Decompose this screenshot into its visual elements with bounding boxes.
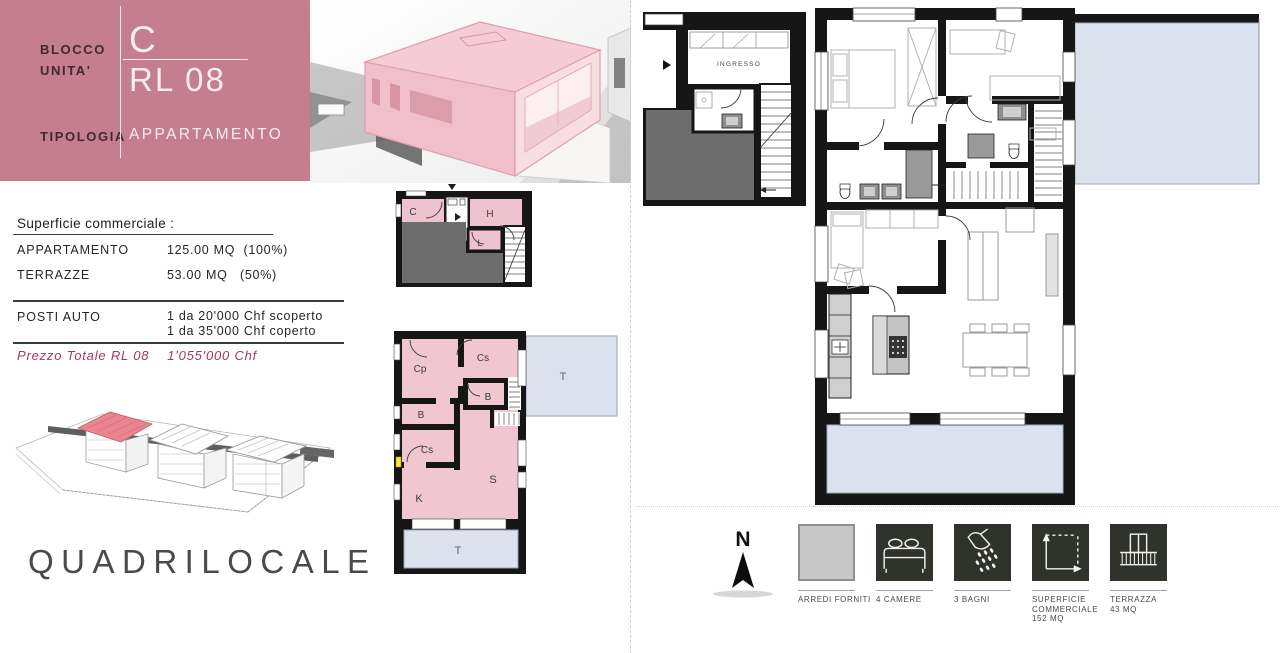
legend-label-line: 152 MQ — [1032, 614, 1089, 624]
room-label-cs-top: Cs — [477, 353, 489, 364]
entry-arrow-icon — [448, 184, 456, 190]
brochure-page: BLOCCO C UNITA' RL 08 TIPOLOGIA APPARTAM… — [0, 0, 1280, 653]
main-floor-plan: INGRESSO — [638, 0, 1280, 520]
legend-label-line: 43 MQ — [1110, 605, 1167, 615]
apartment-key-plan: Cp Cs B B Cs K S T T — [390, 326, 628, 578]
entrance-label: INGRESSO — [717, 61, 761, 68]
legend-label-line: 3 BAGNI — [954, 595, 1011, 605]
surface-row-label: APPARTAMENTO — [17, 243, 129, 257]
legend-item-bagni: 3 BAGNI — [954, 524, 1011, 624]
tipologia-value: APPARTAMENTO — [129, 127, 283, 143]
north-arrow-icon — [732, 552, 754, 588]
blocco-value: C — [129, 21, 158, 58]
dimensions-icon — [1032, 524, 1089, 581]
arredi-forniti-swatch — [798, 524, 855, 581]
legend-item-camere: 4 CAMERE — [876, 524, 933, 624]
shower-icon — [954, 524, 1011, 581]
legend-label-line: 4 CAMERE — [876, 595, 933, 605]
unit-header: BLOCCO C UNITA' RL 08 TIPOLOGIA APPARTAM… — [0, 0, 310, 181]
surface-row-label: TERRAZZE — [17, 268, 90, 282]
parking-option: 1 da 20'000 Chf scoperto — [167, 309, 323, 324]
rule-bottom — [13, 342, 344, 344]
surface-row-value: 125.00 MQ (100%) — [167, 243, 288, 257]
entrance-block: INGRESSO — [643, 12, 806, 206]
rule-title — [13, 234, 273, 235]
electrical-panel-mark — [396, 457, 401, 467]
legend-label-line: COMMERCIALE — [1032, 605, 1089, 615]
room-label-c: C — [409, 207, 416, 218]
room-label-cp: Cp — [414, 364, 427, 375]
surface-value: 53.00 MQ — [167, 268, 228, 282]
legend-label-line: TERRAZZA — [1110, 595, 1167, 605]
surface-percent: (50%) — [240, 268, 277, 282]
parking-options: 1 da 20'000 Chf scoperto 1 da 35'000 Chf… — [167, 309, 323, 339]
site-building-3 — [226, 436, 306, 498]
balcony-icon — [1110, 524, 1167, 581]
north-label: N — [735, 528, 750, 551]
legend-item-terrazza: TERRAZZA 43 MQ — [1110, 524, 1167, 624]
parking-option: 1 da 35'000 Chf coperto — [167, 324, 323, 339]
legend-item-superficie: SUPERFICIE COMMERCIALE 152 MQ — [1032, 524, 1089, 624]
north-compass: N — [708, 522, 778, 602]
cellar-key-plan: C H L — [393, 182, 539, 294]
header-divider-v — [120, 6, 121, 158]
compass-shadow — [713, 591, 773, 598]
legend-label-line: SUPERFICIE — [1032, 595, 1089, 605]
room-label-cs-left: Cs — [421, 445, 433, 456]
surface-row-value: 53.00 MQ (50%) — [167, 268, 277, 282]
bed-icon — [876, 524, 933, 581]
rule-mid — [13, 300, 344, 302]
page-fold-line-v — [630, 0, 631, 653]
parking-label: POSTI AUTO — [17, 310, 101, 324]
building-render-sketch — [310, 0, 631, 183]
legend-item-arredi: ARREDI FORNITI — [798, 524, 855, 624]
room-label-h: H — [486, 209, 493, 220]
price-value: 1'055'000 Chf — [167, 348, 257, 363]
tipologia-label: TIPOLOGIA — [40, 129, 126, 144]
terrace-label-right: T — [560, 371, 567, 383]
terrace-label-bottom: T — [455, 545, 462, 557]
legend-label-line: ARREDI FORNITI — [798, 595, 855, 605]
terrace-top-right — [1075, 14, 1259, 184]
terrace-bottom-main — [827, 425, 1063, 493]
terrace-right — [526, 336, 617, 416]
sketch-neighbor-building — [608, 28, 631, 122]
room-label-b-small: B — [485, 392, 492, 403]
legend: N ARREDI FORNITI — [700, 520, 1260, 640]
total-price: Prezzo Totale RL 081'055'000 Chf — [17, 348, 257, 363]
surface-percent: (100%) — [244, 243, 289, 257]
site-plan-sketch — [8, 386, 338, 514]
room-label-b-left: B — [418, 410, 425, 421]
room-label-l: L — [477, 238, 482, 248]
unita-value: RL 08 — [129, 63, 226, 96]
apartment-type-title: QUADRILOCALE — [28, 543, 377, 581]
blocco-label: BLOCCO — [40, 42, 106, 57]
header-divider-h — [123, 59, 248, 60]
surface-info: Superficie commerciale : APPARTAMENTO 12… — [13, 212, 358, 372]
room-label-s: S — [489, 474, 496, 486]
room-label-k: K — [415, 493, 423, 505]
unita-label: UNITA' — [40, 63, 91, 78]
surface-title: Superficie commerciale : — [17, 216, 174, 231]
surface-value: 125.00 MQ — [167, 243, 235, 257]
price-label: Prezzo Totale RL 08 — [17, 348, 149, 363]
